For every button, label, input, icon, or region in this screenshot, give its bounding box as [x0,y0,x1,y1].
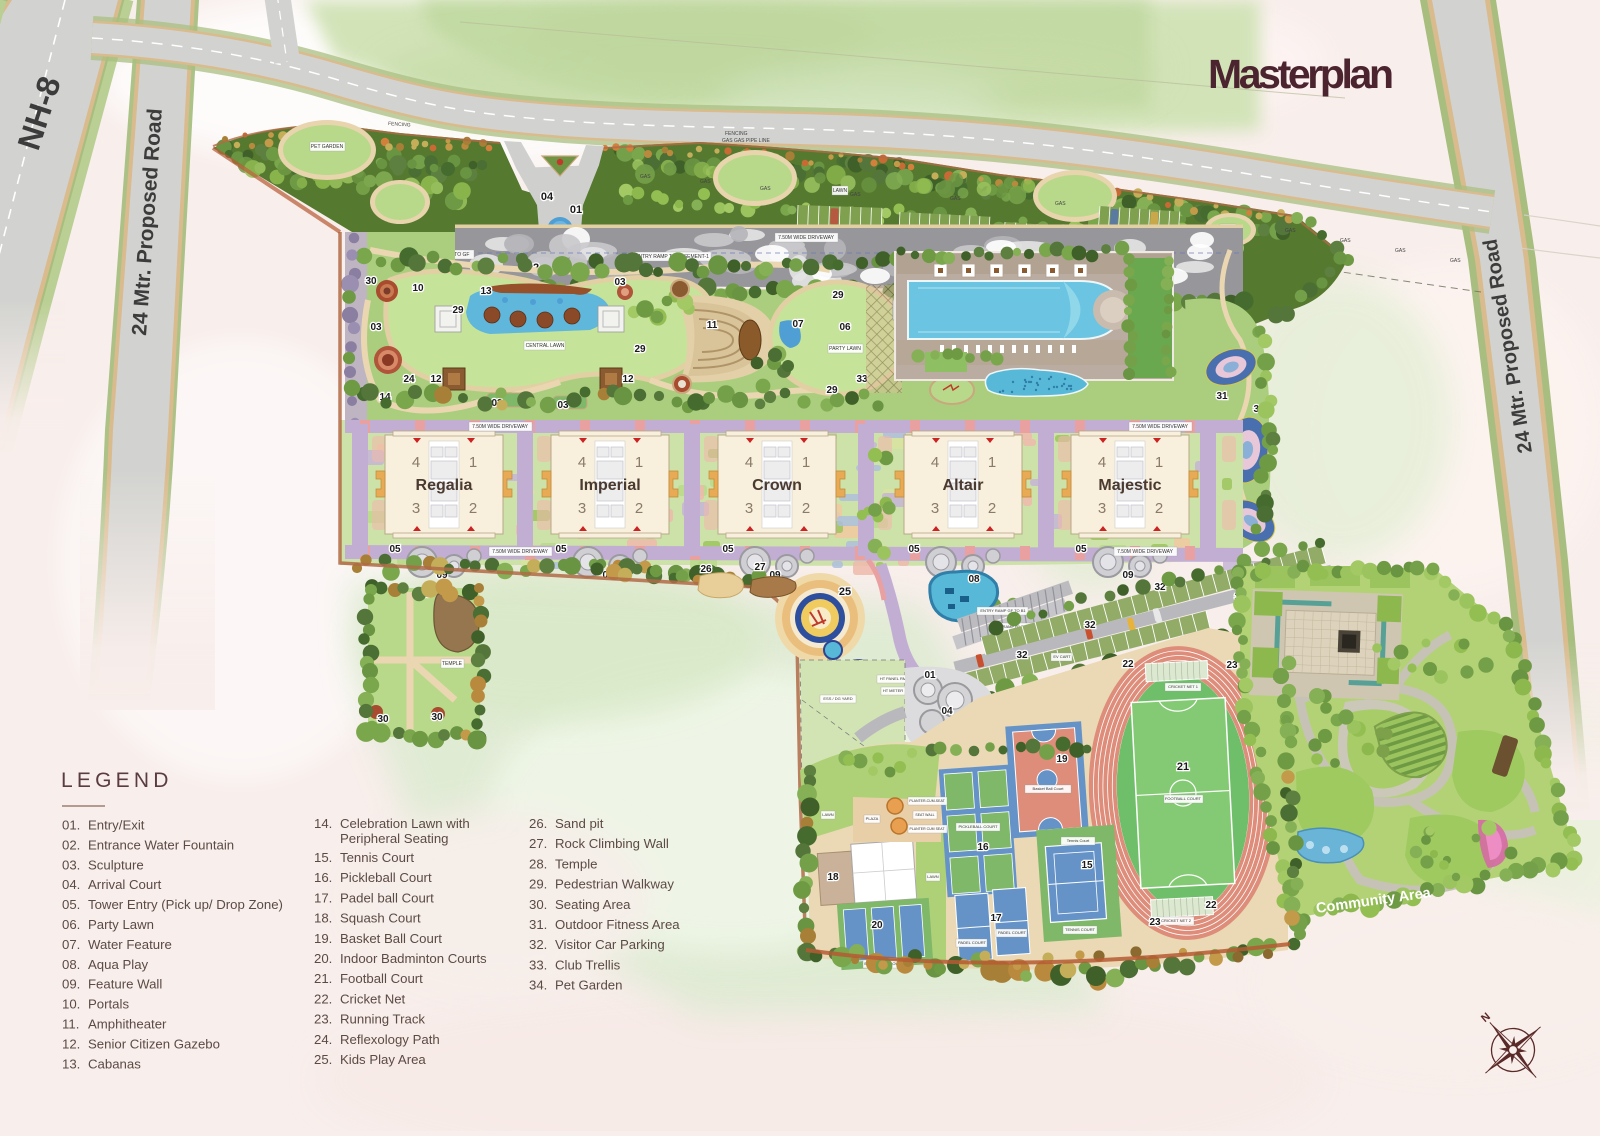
svg-text:Water Feature: Water Feature [88,937,172,952]
svg-text:03.: 03. [62,857,80,872]
svg-text:GAS: GAS [640,174,651,180]
svg-text:22: 22 [1122,659,1134,670]
svg-text:32: 32 [1084,620,1096,631]
svg-text:Masterplan: Masterplan [1208,51,1394,97]
svg-text:Club Trellis: Club Trellis [555,957,621,972]
svg-text:PARTY LAWN: PARTY LAWN [829,346,861,352]
svg-text:PADEL COURT: PADEL COURT [998,930,1026,935]
svg-text:GAS: GAS [950,196,961,202]
svg-text:01.: 01. [62,818,80,833]
svg-text:12: 12 [622,374,634,385]
svg-text:CRICKET NET 1: CRICKET NET 1 [1168,684,1199,689]
svg-text:GAS: GAS [700,179,711,185]
svg-text:01: 01 [570,204,582,216]
svg-text:Rock Climbing Wall: Rock Climbing Wall [555,836,669,851]
svg-text:LEGEND: LEGEND [61,769,173,792]
svg-text:FENCING: FENCING [725,131,748,137]
svg-text:2: 2 [469,500,477,517]
svg-text:Football Court: Football Court [340,971,423,986]
svg-text:29: 29 [452,305,464,316]
svg-text:21: 21 [1177,761,1189,773]
svg-text:05: 05 [908,544,920,555]
svg-text:31.: 31. [529,917,547,932]
svg-text:EV CART: EV CART [1053,654,1071,659]
svg-text:23: 23 [1149,917,1161,928]
svg-text:ENTRY RAMP GF TO B1: ENTRY RAMP GF TO B1 [980,608,1026,613]
svg-text:30: 30 [365,276,377,287]
svg-text:Crown: Crown [752,477,802,494]
svg-text:17: 17 [990,913,1002,924]
svg-text:3: 3 [931,500,939,517]
svg-text:08: 08 [968,574,980,585]
svg-text:Pedestrian Walkway: Pedestrian Walkway [555,877,674,892]
svg-text:4: 4 [1098,454,1106,471]
svg-text:33.: 33. [529,957,547,972]
svg-text:Reflexology Path: Reflexology Path [340,1032,440,1047]
svg-text:PET GARDEN: PET GARDEN [311,144,344,150]
svg-text:13.: 13. [62,1056,80,1071]
svg-text:27: 27 [754,562,766,573]
svg-text:06.: 06. [62,917,80,932]
svg-text:14.: 14. [314,816,332,831]
svg-text:29: 29 [826,385,838,396]
svg-text:3: 3 [745,500,753,517]
svg-text:1: 1 [469,454,477,471]
svg-text:15: 15 [1081,860,1093,871]
svg-text:Visitor Car Parking: Visitor Car Parking [555,937,665,952]
svg-text:7.50M WIDE DRIVEWAY: 7.50M WIDE DRIVEWAY [1117,549,1174,555]
svg-text:LAWN: LAWN [833,188,848,194]
svg-text:18.: 18. [314,911,332,926]
svg-text:16: 16 [977,842,989,853]
svg-text:12.: 12. [62,1036,80,1051]
svg-text:08.: 08. [62,957,80,972]
svg-text:GAS: GAS [1055,201,1066,207]
svg-text:22.: 22. [314,991,332,1006]
svg-text:15.: 15. [314,850,332,865]
svg-text:Pet Garden: Pet Garden [555,978,622,993]
svg-text:32: 32 [1016,650,1028,661]
svg-text:05: 05 [389,544,401,555]
svg-text:Portals: Portals [88,997,129,1012]
svg-text:02.: 02. [62,837,80,852]
svg-text:PADEL COURT: PADEL COURT [958,940,986,945]
svg-text:22: 22 [1205,900,1217,911]
svg-text:2: 2 [802,500,810,517]
svg-text:10.: 10. [62,997,80,1012]
svg-text:SEAT WALL: SEAT WALL [915,813,934,817]
svg-text:3: 3 [412,500,420,517]
svg-text:11: 11 [707,320,718,331]
svg-text:07.: 07. [62,937,80,952]
svg-text:Cricket Net: Cricket Net [340,991,406,1006]
svg-text:4: 4 [745,454,753,471]
svg-text:26.: 26. [529,816,547,831]
svg-text:GAS: GAS [1395,248,1406,254]
svg-text:Peripheral Seating: Peripheral Seating [340,831,449,846]
svg-text:03: 03 [370,322,382,333]
svg-text:Pickleball Court: Pickleball Court [340,870,432,885]
svg-text:2: 2 [988,500,996,517]
svg-text:05: 05 [555,544,567,555]
svg-text:24.: 24. [314,1032,332,1047]
svg-text:16.: 16. [314,870,332,885]
svg-text:GAS: GAS [1450,258,1461,264]
svg-text:TEMPLE: TEMPLE [442,661,463,667]
svg-text:CRICKET NET 2: CRICKET NET 2 [1161,918,1192,923]
svg-text:PLAZA: PLAZA [866,816,879,821]
svg-text:29: 29 [832,290,844,301]
svg-text:Feature Wall: Feature Wall [88,977,162,992]
svg-text:HT PANEL RM: HT PANEL RM [880,676,906,681]
svg-text:27.: 27. [529,836,547,851]
svg-text:05.: 05. [62,897,80,912]
svg-text:Temple: Temple [555,856,598,871]
svg-text:Majestic: Majestic [1098,477,1161,494]
svg-text:20: 20 [871,920,883,931]
svg-text:07: 07 [792,319,804,330]
svg-text:TENNIS COURT: TENNIS COURT [1065,927,1095,932]
svg-text:29: 29 [634,344,646,355]
svg-text:ESS / DG YARD: ESS / DG YARD [823,696,852,701]
svg-text:Sculpture: Sculpture [88,857,144,872]
svg-text:34.: 34. [529,978,547,993]
svg-text:Padel ball Court: Padel ball Court [340,890,434,905]
svg-text:05: 05 [722,544,734,555]
svg-text:3: 3 [578,500,586,517]
svg-text:Sand pit: Sand pit [555,816,604,831]
svg-text:30: 30 [431,712,443,723]
svg-text:Party Lawn: Party Lawn [88,917,154,932]
svg-text:25.: 25. [314,1052,332,1067]
svg-text:32.: 32. [529,937,547,952]
svg-text:2: 2 [1155,500,1163,517]
svg-text:Regalia: Regalia [416,477,473,494]
svg-text:30.: 30. [529,897,547,912]
svg-text:30: 30 [377,714,389,725]
svg-text:7.50M WIDE DRIVEWAY: 7.50M WIDE DRIVEWAY [778,235,835,241]
svg-text:04.: 04. [62,877,80,892]
svg-text:FOOTBALL COURT: FOOTBALL COURT [1165,796,1202,801]
svg-text:28.: 28. [529,856,547,871]
svg-text:1: 1 [802,454,810,471]
svg-text:20.: 20. [314,951,332,966]
svg-text:Cabanas: Cabanas [88,1056,141,1071]
svg-text:06: 06 [839,322,851,333]
svg-text:7.50M WIDE DRIVEWAY: 7.50M WIDE DRIVEWAY [1132,424,1189,430]
svg-text:4: 4 [412,454,420,471]
svg-text:12: 12 [430,374,442,385]
svg-text:03: 03 [614,277,626,288]
svg-text:HT METER: HT METER [883,688,903,693]
svg-text:LAWN: LAWN [927,874,939,879]
svg-text:01: 01 [924,670,936,681]
svg-text:Seating Area: Seating Area [555,897,631,912]
svg-text:PLANTER CUM SEAT: PLANTER CUM SEAT [910,827,946,831]
svg-text:PLANTER-CUM-SEAT: PLANTER-CUM-SEAT [909,799,945,803]
svg-text:GAS: GAS [850,192,861,198]
svg-text:Running Track: Running Track [340,1012,425,1027]
svg-text:GAS: GAS [760,186,771,192]
svg-text:LAWN: LAWN [822,812,834,817]
svg-text:Arrival Court: Arrival Court [88,877,162,892]
svg-text:Altair: Altair [943,477,984,494]
svg-text:Imperial: Imperial [579,477,640,494]
svg-text:4: 4 [578,454,586,471]
svg-text:PICKLEBALL COURT: PICKLEBALL COURT [958,824,998,829]
svg-text:7.50M WIDE DRIVEWAY: 7.50M WIDE DRIVEWAY [472,424,529,430]
svg-text:04: 04 [541,191,554,203]
svg-text:Tennis Court: Tennis Court [1067,838,1090,843]
svg-text:Celebration Lawn with: Celebration Lawn with [340,816,470,831]
svg-text:4: 4 [931,454,939,471]
svg-text:26: 26 [700,564,712,575]
svg-text:1: 1 [1155,454,1163,471]
svg-text:09.: 09. [62,977,80,992]
svg-text:05: 05 [1075,544,1087,555]
svg-text:7.50M WIDE DRIVEWAY: 7.50M WIDE DRIVEWAY [492,549,549,555]
svg-text:Kids Play Area: Kids Play Area [340,1052,426,1067]
svg-text:1: 1 [635,454,643,471]
svg-text:Entrance Water Fountain: Entrance Water Fountain [88,837,234,852]
svg-text:10: 10 [412,283,424,294]
svg-text:19: 19 [1056,754,1068,765]
svg-text:24: 24 [403,374,415,385]
svg-text:CENTRAL LAWN: CENTRAL LAWN [526,343,565,349]
svg-text:25: 25 [839,586,851,598]
svg-text:Tower Entry (Pick up/ Drop Zon: Tower Entry (Pick up/ Drop Zone) [88,897,283,912]
svg-text:Outdoor Fitness Area: Outdoor Fitness Area [555,917,680,932]
svg-text:Indoor Badminton Courts: Indoor Badminton Courts [340,951,487,966]
svg-text:Senior Citizen Gazebo: Senior Citizen Gazebo [88,1036,220,1051]
svg-text:Aqua Play: Aqua Play [88,957,149,972]
svg-text:1: 1 [988,454,996,471]
svg-text:18: 18 [827,872,839,883]
svg-text:31: 31 [1216,391,1228,402]
svg-text:3: 3 [1098,500,1106,517]
svg-text:Tennis Court: Tennis Court [340,850,414,865]
svg-text:Entry/Exit: Entry/Exit [88,818,145,833]
svg-text:19.: 19. [314,931,332,946]
svg-text:11.: 11. [62,1017,79,1032]
svg-text:GAS GAS PIPE LINE: GAS GAS PIPE LINE [722,138,770,144]
svg-text:Basket Ball Court: Basket Ball Court [340,931,442,946]
svg-text:04: 04 [941,706,953,717]
svg-text:21.: 21. [314,971,332,986]
svg-text:Squash Court: Squash Court [340,911,421,926]
svg-text:29.: 29. [529,877,547,892]
svg-text:Amphitheater: Amphitheater [88,1017,167,1032]
svg-text:Basket Ball Court: Basket Ball Court [1033,786,1065,791]
svg-text:09: 09 [1122,570,1134,581]
svg-text:2: 2 [635,500,643,517]
svg-text:GAS: GAS [1285,228,1296,234]
svg-text:17.: 17. [314,890,332,905]
svg-text:13: 13 [480,286,492,297]
svg-text:23.: 23. [314,1012,332,1027]
